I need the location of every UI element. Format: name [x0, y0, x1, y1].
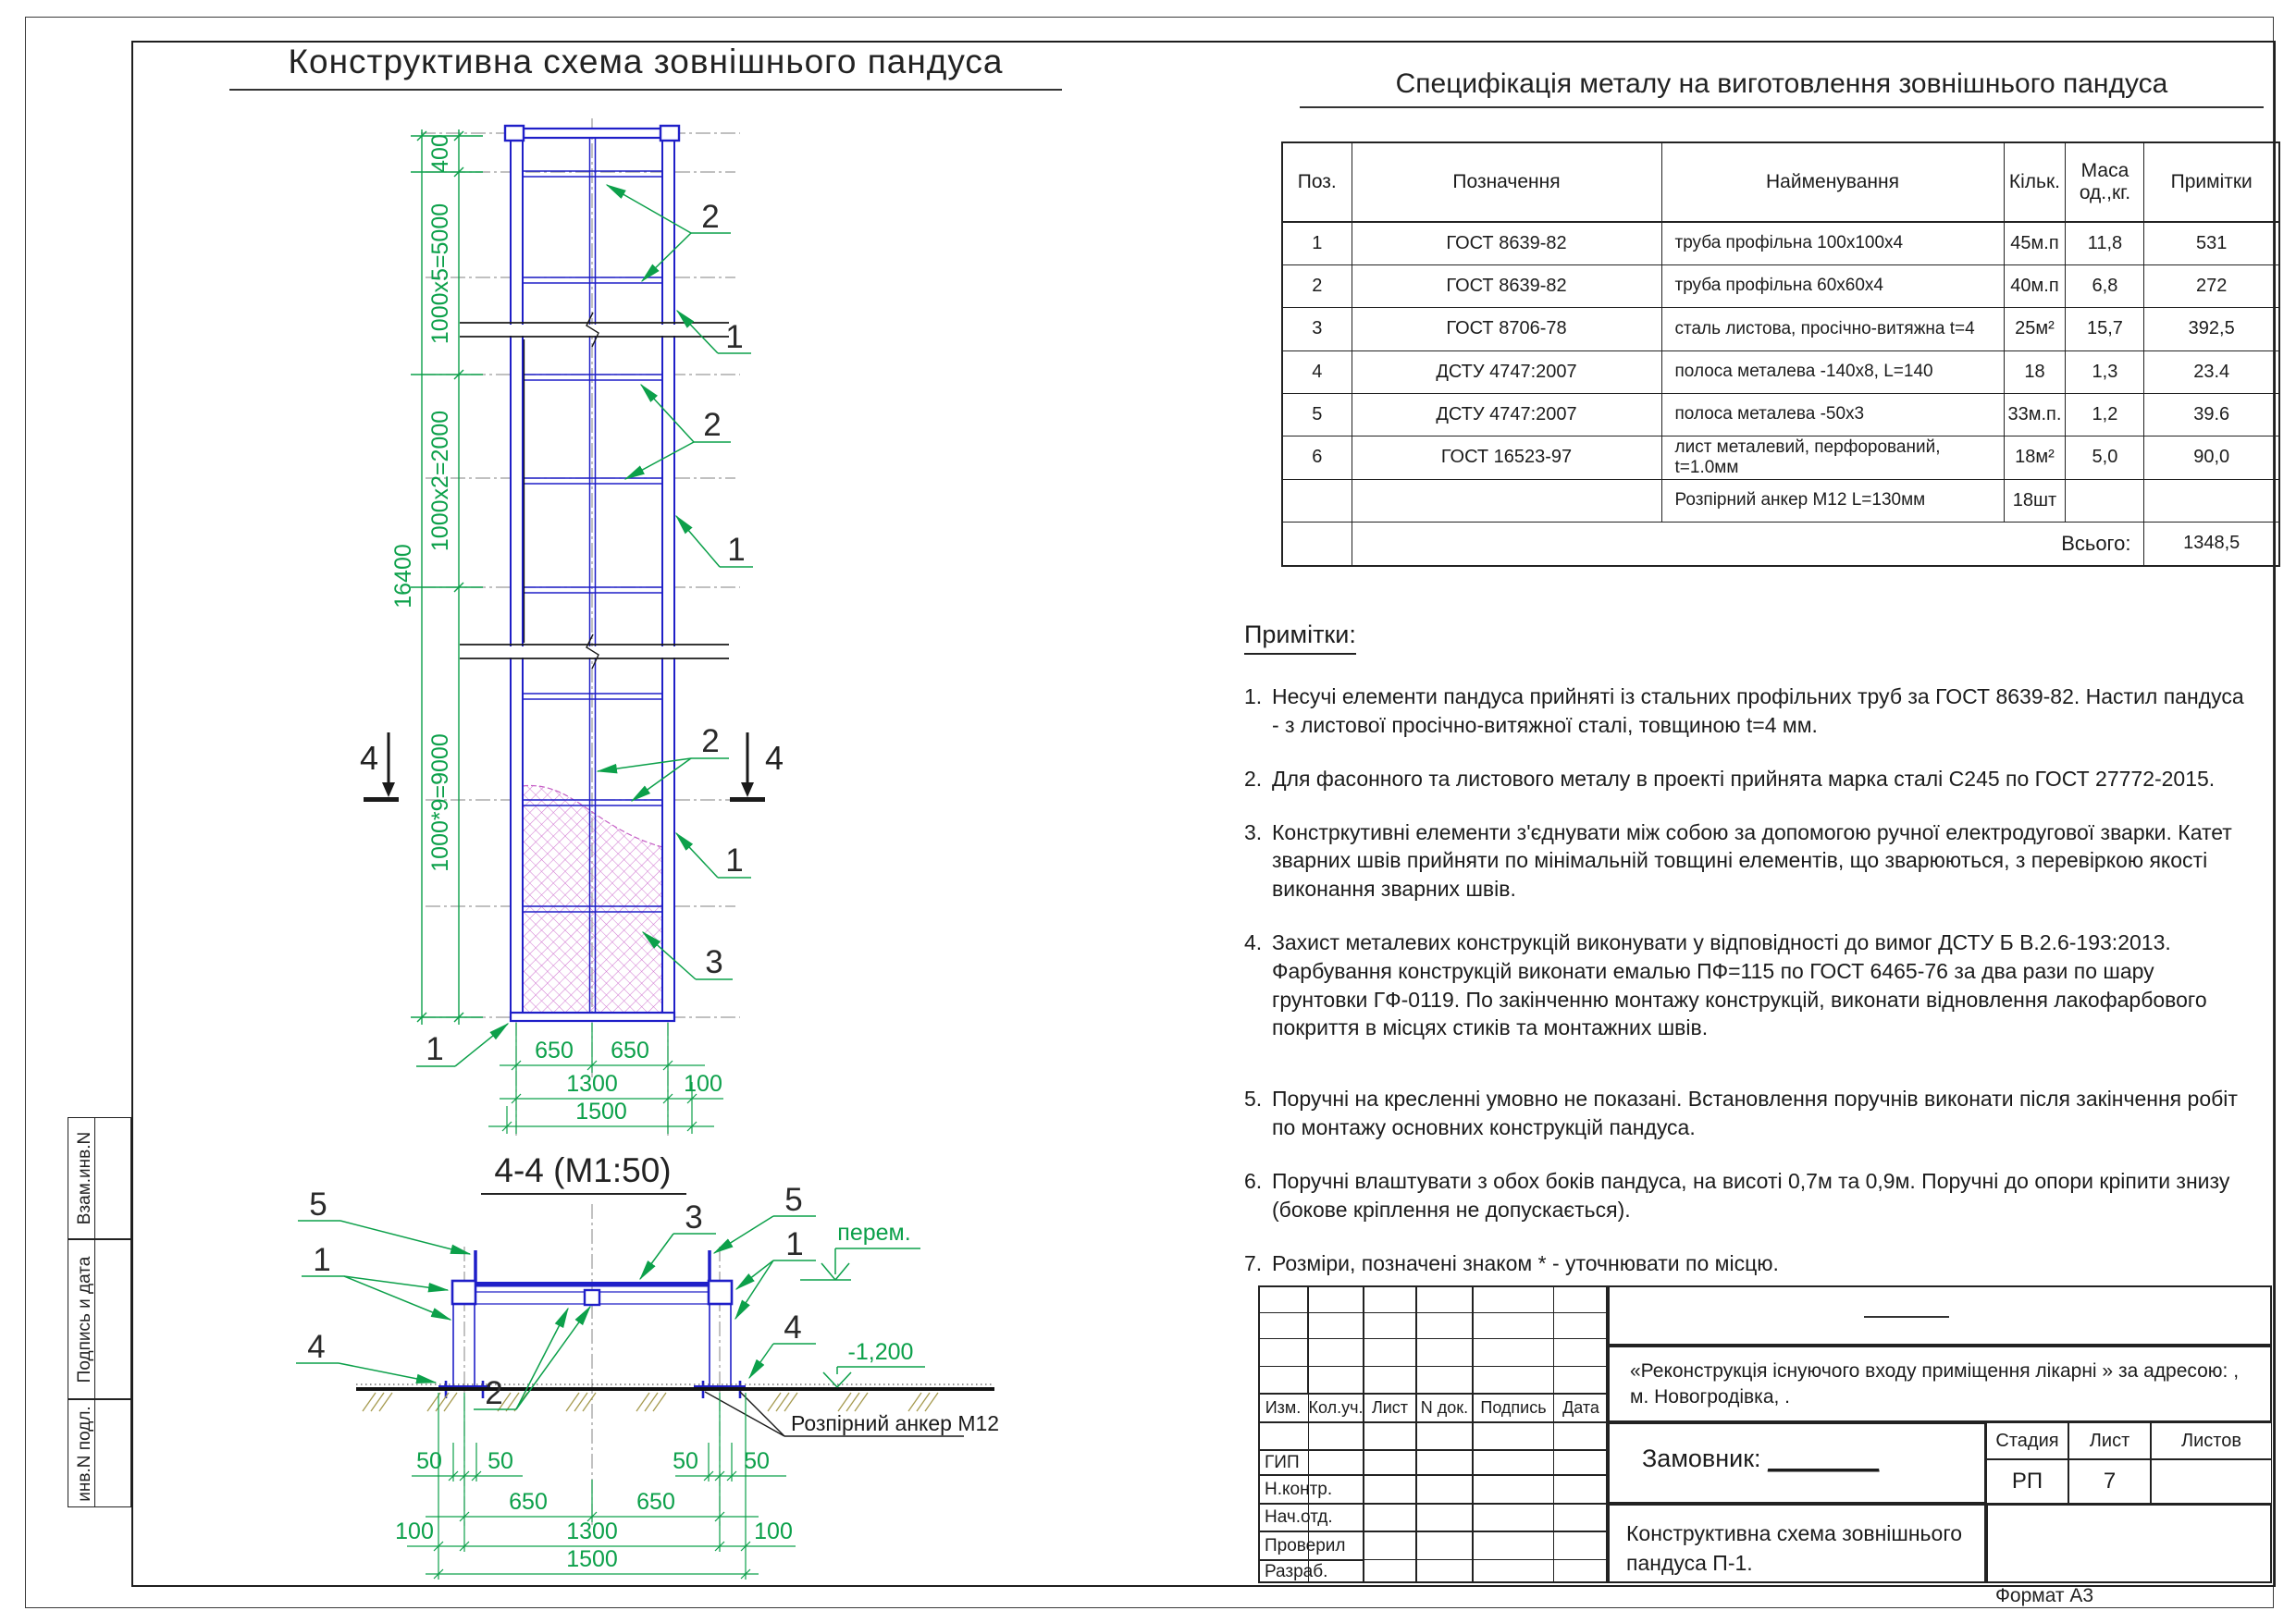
theme-line1: Конструктивна схема зовнішнього: [1626, 1518, 1984, 1548]
tb-col-koluch: Кол.уч.: [1308, 1394, 1364, 1422]
tb-sheets-value: [2151, 1459, 2272, 1504]
spec-header-name: Найменування: [1661, 142, 2004, 222]
drawing-sheet: 400 1000х5=5000 1000х2=2000 1000*9=9000 …: [0, 0, 2296, 1623]
callout-1: 1: [725, 319, 743, 355]
spec-cell: 15,7: [2066, 307, 2144, 350]
note-number: 7.: [1244, 1249, 1272, 1278]
spec-cell: ГОСТ 16523-97: [1352, 436, 1661, 479]
spec-total-value: 1348,5: [2144, 522, 2279, 566]
spec-header-mass: Маса од.,кг.: [2066, 142, 2144, 222]
cut-mark-4-left: 4: [360, 739, 378, 777]
section-centerlines: [464, 1204, 720, 1526]
spec-cell: Розпірний анкер М12 L=130мм: [1661, 479, 2004, 522]
dim-100: 100: [684, 1071, 722, 1097]
spec-header-designation: Позначення: [1352, 142, 1661, 222]
stamp-label: инв.N подл.: [75, 1380, 95, 1528]
spec-table-title: Специфікація металу на виготовлення зовн…: [1300, 68, 2264, 108]
spec-cell: ГОСТ 8706-78: [1352, 307, 1661, 350]
dim-50: 50: [488, 1448, 513, 1474]
spec-cell: 3: [1282, 307, 1352, 350]
tb-col-izm: Изм.: [1258, 1394, 1308, 1422]
note-text: Для фасонного та листового металу в прое…: [1272, 765, 2254, 793]
spec-cell: лист металевий, перфорований, t=1.0мм: [1661, 436, 2004, 479]
callout-5: 5: [784, 1182, 802, 1218]
dim-100: 100: [395, 1518, 434, 1544]
table-row: 3 ГОСТ 8706-78 сталь листова, просічно-в…: [1282, 307, 2279, 350]
callout-1: 1: [426, 1031, 443, 1067]
notes-title: Примітки:: [1244, 618, 1356, 655]
stamp-cell: инв.N подл.: [68, 1400, 95, 1506]
tb-stage-header: Стадия: [1986, 1422, 2068, 1459]
cut-mark-4-right: 4: [765, 739, 784, 777]
tb-grid-row: [1364, 1422, 1608, 1450]
spec-header-pos: Поз.: [1282, 142, 1352, 222]
spec-cell: [1352, 479, 1661, 522]
stamp-inv-podl: инв.N подл.: [68, 1399, 131, 1507]
dim-5000: 1000х5=5000: [427, 203, 453, 344]
dim-1500: 1500: [575, 1099, 627, 1125]
tb-sign-nachotd: Нач.отд.: [1258, 1504, 1364, 1531]
spec-cell: 392,5: [2144, 307, 2279, 350]
tb-project-cell: «Реконструкція існуючого входу приміщенн…: [1608, 1346, 2272, 1422]
tb-sign-proveril: Проверил: [1258, 1531, 1364, 1560]
table-row: 4 ДСТУ 4747:2007 полоса металева -140х8,…: [1282, 350, 2279, 393]
stamp-vzam-inv: Взам.инв.N: [68, 1117, 131, 1239]
elevation-view: 400 1000х5=5000 1000х2=2000 1000*9=9000 …: [360, 118, 784, 1137]
tb-stage-value: РП: [1986, 1459, 2068, 1504]
spec-cell: 272: [2144, 264, 2279, 307]
spec-cell: 25м²: [2004, 307, 2066, 350]
stamp-label: Подпись и дата: [75, 1246, 95, 1394]
tb-col-ndok: N док.: [1416, 1394, 1473, 1422]
spec-cell: 5: [1282, 393, 1352, 436]
spec-cell: труба профільна 60х60х4: [1661, 264, 2004, 307]
table-row-total: Всього: 1348,5: [1282, 522, 2279, 566]
notes-block: Примітки: 1. Несучі елементи пандуса при…: [1244, 618, 2254, 1302]
spec-cell: [1282, 479, 1352, 522]
note-number: 5.: [1244, 1085, 1272, 1142]
dim-650: 650: [636, 1489, 675, 1515]
tb-grid-row: [1364, 1531, 1608, 1560]
dim-650: 650: [509, 1489, 548, 1515]
note-number: 2.: [1244, 765, 1272, 793]
spec-cell: 40м.п: [2004, 264, 2066, 307]
spec-table: Поз. Позначення Найменування Кільк. Маса…: [1281, 141, 2280, 567]
dim-16400: 16400: [390, 544, 416, 609]
spec-cell: 23.4: [2144, 350, 2279, 393]
spec-cell: труба профільна 100х100х4: [1661, 222, 2004, 264]
dim-1300: 1300: [566, 1071, 618, 1097]
ground-hatch: [363, 1393, 938, 1411]
spec-cell: 1,2: [2066, 393, 2144, 436]
spec-cell: [1282, 522, 1352, 566]
spec-cell: 4: [1282, 350, 1352, 393]
mesh-hatch-area: [523, 785, 662, 1013]
callout-1: 1: [727, 532, 745, 568]
spec-cell: 18м²: [2004, 436, 2066, 479]
dim-400: 400: [427, 134, 453, 173]
spec-header-qty: Кільк.: [2004, 142, 2066, 222]
level-bottom-label: -1,200: [848, 1339, 914, 1365]
list-item: 2. Для фасонного та листового металу в п…: [1244, 765, 2254, 793]
list-item: 5. Поручні на кресленні умовно не показа…: [1244, 1085, 2254, 1142]
note-text: Розміри, позначені знаком * - уточнювати…: [1272, 1249, 2254, 1278]
tb-grid-row: [1258, 1366, 1608, 1394]
section-4-4-view: 4-4 (М1:50): [296, 1151, 999, 1580]
spec-total-label: Всього:: [1352, 522, 2144, 566]
format-label: Формат А3: [1961, 1585, 2128, 1607]
project-name-line1: «Реконструкція існуючого входу приміщенн…: [1630, 1359, 2270, 1384]
tb-col-data: Дата: [1554, 1394, 1608, 1422]
list-item: 3. Констркутивні елементи з'єднувати між…: [1244, 818, 2254, 904]
project-name-line2: м. Новогродівка, .: [1630, 1384, 2270, 1410]
elevation-dimensions: 400 1000х5=5000 1000х2=2000 1000*9=9000 …: [390, 129, 483, 1025]
spec-cell: 18: [2004, 350, 2066, 393]
tb-grid-row: [1364, 1475, 1608, 1504]
note-text: Несучі елементи пандуса прийняті із стал…: [1272, 682, 2254, 740]
note-number: 1.: [1244, 682, 1272, 740]
list-item: 1. Несучі елементи пандуса прийняті із с…: [1244, 682, 2254, 740]
spec-cell: 1: [1282, 222, 1352, 264]
callout-2: 2: [701, 199, 719, 235]
spec-cell: 531: [2144, 222, 2279, 264]
callout-2: 2: [485, 1375, 502, 1411]
callout-1: 1: [313, 1242, 330, 1278]
note-number: 4.: [1244, 928, 1272, 1042]
spec-cell: ДСТУ 4747:2007: [1352, 350, 1661, 393]
callout-3: 3: [705, 944, 722, 980]
spec-cell: [2066, 479, 2144, 522]
table-row: 5 ДСТУ 4747:2007 полоса металева -50х3 3…: [1282, 393, 2279, 436]
theme-line2: пандуса П-1.: [1626, 1548, 1984, 1578]
level-mark-top: перем.: [800, 1220, 920, 1280]
spec-cell: 2: [1282, 264, 1352, 307]
tb-sheets-header: Листов: [2151, 1422, 2272, 1459]
table-row: 2 ГОСТ 8639-82 труба профільна 60х60х4 4…: [1282, 264, 2279, 307]
spec-cell: полоса металева -50х3: [1661, 393, 2004, 436]
callout-1: 1: [785, 1226, 803, 1262]
note-number: 3.: [1244, 818, 1272, 904]
tb-org-cell: [1986, 1504, 2272, 1583]
note-text: Поручні влаштувати з обох боків пандуса,…: [1272, 1167, 2254, 1224]
callout-4: 4: [307, 1329, 325, 1365]
spec-cell: 6,8: [2066, 264, 2144, 307]
customer-value: ________: [1768, 1445, 1879, 1472]
table-row: 6 ГОСТ 16523-97 лист металевий, перфоров…: [1282, 436, 2279, 479]
callout-1: 1: [725, 842, 743, 879]
stamp-label: Взам.инв.N: [75, 1104, 95, 1252]
spec-cell: 5,0: [2066, 436, 2144, 479]
spec-cell: 1,3: [2066, 350, 2144, 393]
spec-cell: полоса металева -140х8, L=140: [1661, 350, 2004, 393]
section-title: 4-4 (М1:50): [494, 1151, 671, 1189]
table-row: Розпірний анкер М12 L=130мм 18шт: [1282, 479, 2279, 522]
dim-9000: 1000*9=9000: [427, 733, 453, 871]
tb-sign-nkontr: Н.контр.: [1258, 1475, 1364, 1504]
tb-col-podpis: Подпись: [1473, 1394, 1554, 1422]
note-number: 6.: [1244, 1167, 1272, 1224]
note-text: Поручні на кресленні умовно не показані.…: [1272, 1085, 2254, 1142]
spec-cell: 33м.п.: [2004, 393, 2066, 436]
tb-sign-razrab: Разраб.: [1258, 1560, 1364, 1583]
break-symbols: [460, 313, 729, 669]
stamp-podpis-data: Подпись и дата: [68, 1239, 131, 1399]
spec-cell: ГОСТ 8639-82: [1352, 222, 1661, 264]
section-dimensions: 50 50 50 50 650 650 100 1300 100 1500: [395, 1393, 796, 1580]
tb-col-list: Лист: [1364, 1394, 1416, 1422]
spec-cell: сталь листова, просічно-витяжна t=4: [1661, 307, 2004, 350]
page-title: Конструктивна схема зовнішнього пандуса: [229, 43, 1062, 91]
list-item: 6. Поручні влаштувати з обох боків панду…: [1244, 1167, 2254, 1224]
dim-50: 50: [673, 1448, 698, 1474]
callout-5: 5: [309, 1187, 327, 1223]
callout-2: 2: [701, 723, 719, 759]
tb-sign-empty: [1258, 1422, 1364, 1450]
dim-50: 50: [744, 1448, 770, 1474]
spec-cell: 45м.п: [2004, 222, 2066, 264]
dim-1500: 1500: [566, 1546, 618, 1572]
callout-2: 2: [703, 407, 721, 443]
tb-sheet-value: 7: [2068, 1459, 2151, 1504]
dim-50: 50: [416, 1448, 442, 1474]
spec-cell: 6: [1282, 436, 1352, 479]
tb-grid-row: [1258, 1312, 1608, 1339]
anchor-label: Розпірний анкер М12: [791, 1411, 999, 1435]
spec-header-notes: Примітки: [2144, 142, 2279, 222]
tb-grid-row: [1364, 1504, 1608, 1531]
callout-4: 4: [784, 1309, 801, 1346]
table-row: 1 ГОСТ 8639-82 труба профільна 100х100х4…: [1282, 222, 2279, 264]
list-item: 7. Розміри, позначені знаком * - уточнюв…: [1244, 1249, 2254, 1278]
spec-cell: 90,0: [2144, 436, 2279, 479]
list-item: 4. Захист металевих конструкцій виконува…: [1244, 928, 2254, 1042]
tb-theme-cell: Конструктивна схема зовнішнього пандуса …: [1608, 1504, 1986, 1583]
tb-code-dash: [1864, 1316, 1949, 1318]
dim-100: 100: [754, 1518, 793, 1544]
stamp-cell: Взам.инв.N: [68, 1118, 95, 1238]
stamp-cell: Подпись и дата: [68, 1240, 95, 1398]
dim-650-a: 650: [535, 1038, 574, 1064]
elevation-bottom-dimensions: 650 650 1300 100 1500: [488, 1023, 723, 1134]
section-callouts: 5 1 4 2 3 5 1 4: [296, 1182, 816, 1411]
tb-grid-row: [1364, 1450, 1608, 1475]
spec-cell: 18шт: [2004, 479, 2066, 522]
tb-sign-gip: ГИП: [1258, 1450, 1364, 1475]
anchor-callout: Розпірний анкер М12: [705, 1392, 999, 1436]
tb-sheet-header: Лист: [2068, 1422, 2151, 1459]
spec-cell: 39.6: [2144, 393, 2279, 436]
spec-cell: 11,8: [2066, 222, 2144, 264]
section-cut-marks: 4 4: [360, 732, 784, 802]
callout-3: 3: [685, 1199, 702, 1236]
note-text: Констркутивні елементи з'єднувати між со…: [1272, 818, 2254, 904]
title-block: Изм. Кол.уч. Лист N док. Подпись Дата ГИ…: [1258, 1285, 2272, 1583]
tb-header-labels: Изм. Кол.уч. Лист N док. Подпись Дата: [1258, 1394, 1608, 1422]
dim-650-b: 650: [611, 1038, 649, 1064]
level-top-label: перем.: [837, 1220, 910, 1246]
customer-label: Замовник:: [1642, 1445, 1761, 1472]
level-mark-bottom: -1,200: [823, 1339, 925, 1387]
spec-cell: ДСТУ 4747:2007: [1352, 393, 1661, 436]
dim-2000: 1000х2=2000: [427, 411, 453, 551]
note-text: Захист металевих конструкцій виконувати …: [1272, 928, 2254, 1042]
dim-1300: 1300: [566, 1518, 618, 1544]
spec-cell: [2144, 479, 2279, 522]
spec-cell: ГОСТ 8639-82: [1352, 264, 1661, 307]
tb-customer-cell: Замовник: ________: [1608, 1422, 1986, 1504]
